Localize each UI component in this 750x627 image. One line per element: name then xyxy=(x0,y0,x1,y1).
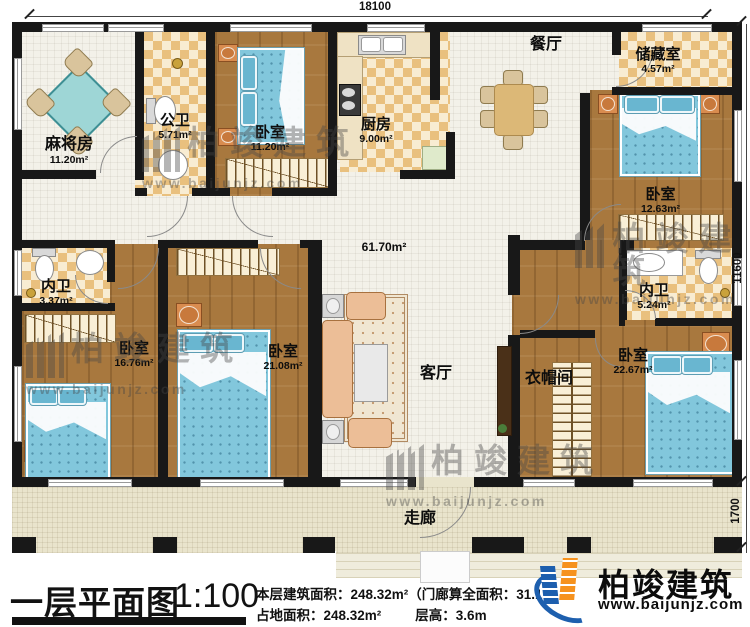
room-area: 22.67m² xyxy=(596,364,670,376)
brand-url: www.baijunjz.com xyxy=(598,596,743,613)
porch-pillar xyxy=(303,537,335,553)
window xyxy=(14,58,22,130)
room-area: 21.08m² xyxy=(246,360,320,372)
wall xyxy=(168,240,258,248)
stats-line1: 本层建筑面积：248.32m²（门廊算全面积：31.1 xyxy=(256,583,543,603)
wall xyxy=(300,240,316,248)
faucet-icon xyxy=(172,58,183,69)
dining-chair xyxy=(503,134,523,150)
nightstand xyxy=(176,303,202,327)
side-table xyxy=(322,420,344,444)
room-area: 5.71m² xyxy=(143,129,207,141)
room-label-public-bath: 公卫 5.71m² xyxy=(143,112,207,141)
wardrobe xyxy=(225,158,330,188)
pillow xyxy=(660,96,694,113)
wall xyxy=(12,240,115,248)
room-area: 11.20m² xyxy=(232,141,308,153)
dimension-line xyxy=(28,16,708,17)
window xyxy=(734,110,742,182)
room-label-inner-bath1: 内卫 3.37m² xyxy=(24,278,88,307)
armchair xyxy=(348,418,392,448)
pillow xyxy=(214,334,244,352)
window xyxy=(14,250,22,296)
room-name: 卧室 xyxy=(232,124,308,141)
wall xyxy=(619,318,625,326)
window xyxy=(230,24,312,32)
room-label-cloakroom: 衣帽间 xyxy=(512,370,586,388)
nightstand xyxy=(218,44,238,62)
room-label-bedroom1: 卧室 11.20m² xyxy=(232,124,308,153)
porch-pillar xyxy=(153,537,177,553)
porch-pillar xyxy=(567,537,591,553)
window xyxy=(734,360,742,440)
nightstand xyxy=(598,94,618,114)
window xyxy=(633,479,713,487)
pillow xyxy=(30,388,58,405)
floor-plan: 麻将房 11.20m² 公卫 5.71m² 卧室 11.20m² 厨房 9.00… xyxy=(0,0,750,627)
room-name: 卧室 xyxy=(98,340,170,357)
wall xyxy=(215,188,230,196)
room-name: 卧室 xyxy=(246,343,320,360)
wall xyxy=(272,188,337,196)
window xyxy=(48,479,132,487)
room-name: 储藏室 xyxy=(608,46,708,63)
window xyxy=(14,366,22,442)
nightstand xyxy=(700,94,720,114)
room-name: 麻将房 xyxy=(24,136,114,154)
stats-site-area: 占地面积：248.32m² xyxy=(256,604,381,624)
pillow xyxy=(241,56,257,90)
room-area: 5.24m² xyxy=(622,299,686,311)
room-name: 内卫 xyxy=(622,282,686,299)
pillow xyxy=(183,334,213,352)
armchair xyxy=(346,292,386,320)
window xyxy=(108,24,164,32)
wall xyxy=(620,240,634,250)
room-area: 12.63m² xyxy=(618,203,703,215)
coffee-table xyxy=(354,344,388,402)
entry-step xyxy=(420,551,470,583)
sofa xyxy=(322,320,353,418)
window xyxy=(200,479,284,487)
room-area: 9.00m² xyxy=(338,133,414,145)
room-area: 4.57m² xyxy=(608,63,708,75)
wall xyxy=(328,22,337,196)
wall xyxy=(508,240,585,250)
room-label-inner-bath2: 内卫 5.24m² xyxy=(622,282,686,311)
dimension-porch: 1700 xyxy=(730,493,742,529)
pillow xyxy=(625,96,659,113)
floor-drain xyxy=(720,288,730,298)
burner xyxy=(342,88,355,97)
room-name: 卧室 xyxy=(596,347,670,364)
dimension-top: 18100 xyxy=(340,1,410,13)
room-label-bedroom2: 卧室 12.63m² xyxy=(618,186,703,215)
sink-basin xyxy=(361,37,381,52)
pillow xyxy=(241,92,257,126)
pillow xyxy=(682,356,712,374)
room-name: 内卫 xyxy=(24,278,88,295)
wall xyxy=(580,93,590,240)
dimension-right: 11600 xyxy=(732,244,744,292)
porch-pillar xyxy=(472,537,524,553)
wall xyxy=(12,170,96,179)
window xyxy=(642,24,712,32)
burner xyxy=(342,101,355,110)
wardrobe xyxy=(24,314,116,343)
room-area: 16.76m² xyxy=(98,357,170,369)
room-label-storage: 储藏室 4.57m² xyxy=(608,46,708,75)
dimension-tick xyxy=(701,9,712,20)
room-label-bedroom5: 卧室 22.67m² xyxy=(596,347,670,376)
plan-scale: 1:100 xyxy=(174,577,259,616)
porch-floor xyxy=(12,487,742,553)
room-area: 11.20m² xyxy=(24,154,114,166)
tv-cabinet xyxy=(497,346,512,436)
room-name: 客厅 xyxy=(402,365,470,383)
hall-area-label: 61.70m² xyxy=(348,241,420,255)
wardrobe xyxy=(618,214,724,241)
entry-door-opening xyxy=(416,477,474,487)
brand-logo-icon xyxy=(534,556,592,616)
room-label-kitchen: 厨房 9.00m² xyxy=(338,116,414,145)
sink-icon xyxy=(76,250,104,275)
bed-sheet xyxy=(646,372,730,413)
window xyxy=(523,479,575,487)
room-label-living: 客厅 xyxy=(402,365,470,383)
area-value: 61.70m² xyxy=(348,241,420,255)
dimension-tick xyxy=(24,9,35,20)
window xyxy=(340,479,408,487)
stats-line2: 占地面积：248.32m² 层高：3.6m xyxy=(256,604,487,624)
room-label-dining: 餐厅 xyxy=(512,36,580,54)
wall xyxy=(430,22,440,100)
room-label-bedroom4: 卧室 21.08m² xyxy=(246,343,320,372)
room-name: 走廊 xyxy=(388,510,452,528)
porch-pillar xyxy=(12,537,36,553)
room-name: 厨房 xyxy=(338,116,414,133)
window xyxy=(367,24,425,32)
room-name: 衣帽间 xyxy=(512,370,586,388)
side-table xyxy=(322,294,344,318)
wall xyxy=(192,188,215,196)
room-name: 餐厅 xyxy=(512,36,580,54)
pillow xyxy=(58,388,86,405)
sink-icon xyxy=(158,150,188,180)
room-label-corridor: 走廊 xyxy=(388,510,452,528)
room-name: 卧室 xyxy=(618,186,703,203)
room-name: 公卫 xyxy=(143,112,207,129)
wall xyxy=(135,188,147,196)
room-area: 3.37m² xyxy=(24,295,88,307)
stats-floor-height: 层高：3.6m xyxy=(415,604,486,624)
wall xyxy=(206,22,215,196)
sink-basin xyxy=(383,37,403,52)
room-label-mahjong: 麻将房 11.20m² xyxy=(24,136,114,166)
room-label-bedroom3: 卧室 16.76m² xyxy=(98,340,170,369)
plant-icon xyxy=(498,424,507,433)
wall xyxy=(400,170,455,179)
window xyxy=(42,24,104,32)
porch-end-gap xyxy=(316,551,336,579)
title-underline xyxy=(12,617,246,625)
wall xyxy=(655,318,742,326)
wall xyxy=(612,87,742,95)
dining-table xyxy=(494,84,534,136)
bed-sheet xyxy=(26,402,106,439)
dimension-line xyxy=(746,24,747,487)
toilet-icon xyxy=(699,257,718,284)
sink-icon xyxy=(633,253,665,272)
